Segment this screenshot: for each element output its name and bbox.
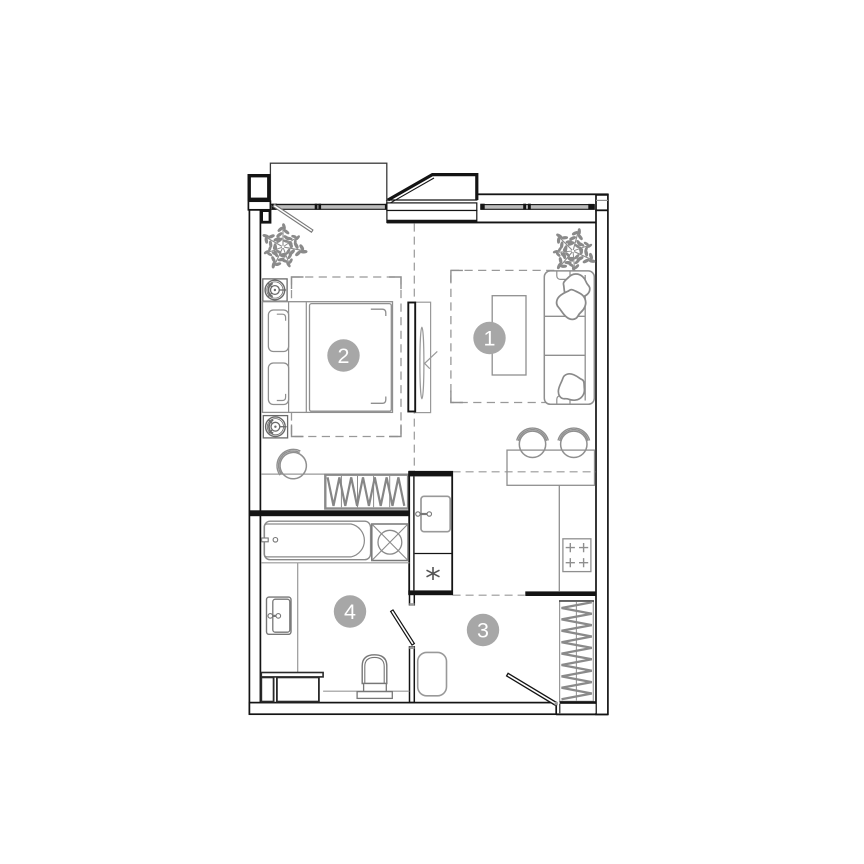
svg-text:2: 2 <box>338 344 350 368</box>
svg-text:4: 4 <box>344 600 356 624</box>
svg-text:3: 3 <box>477 619 489 643</box>
svg-text:1: 1 <box>484 327 496 351</box>
